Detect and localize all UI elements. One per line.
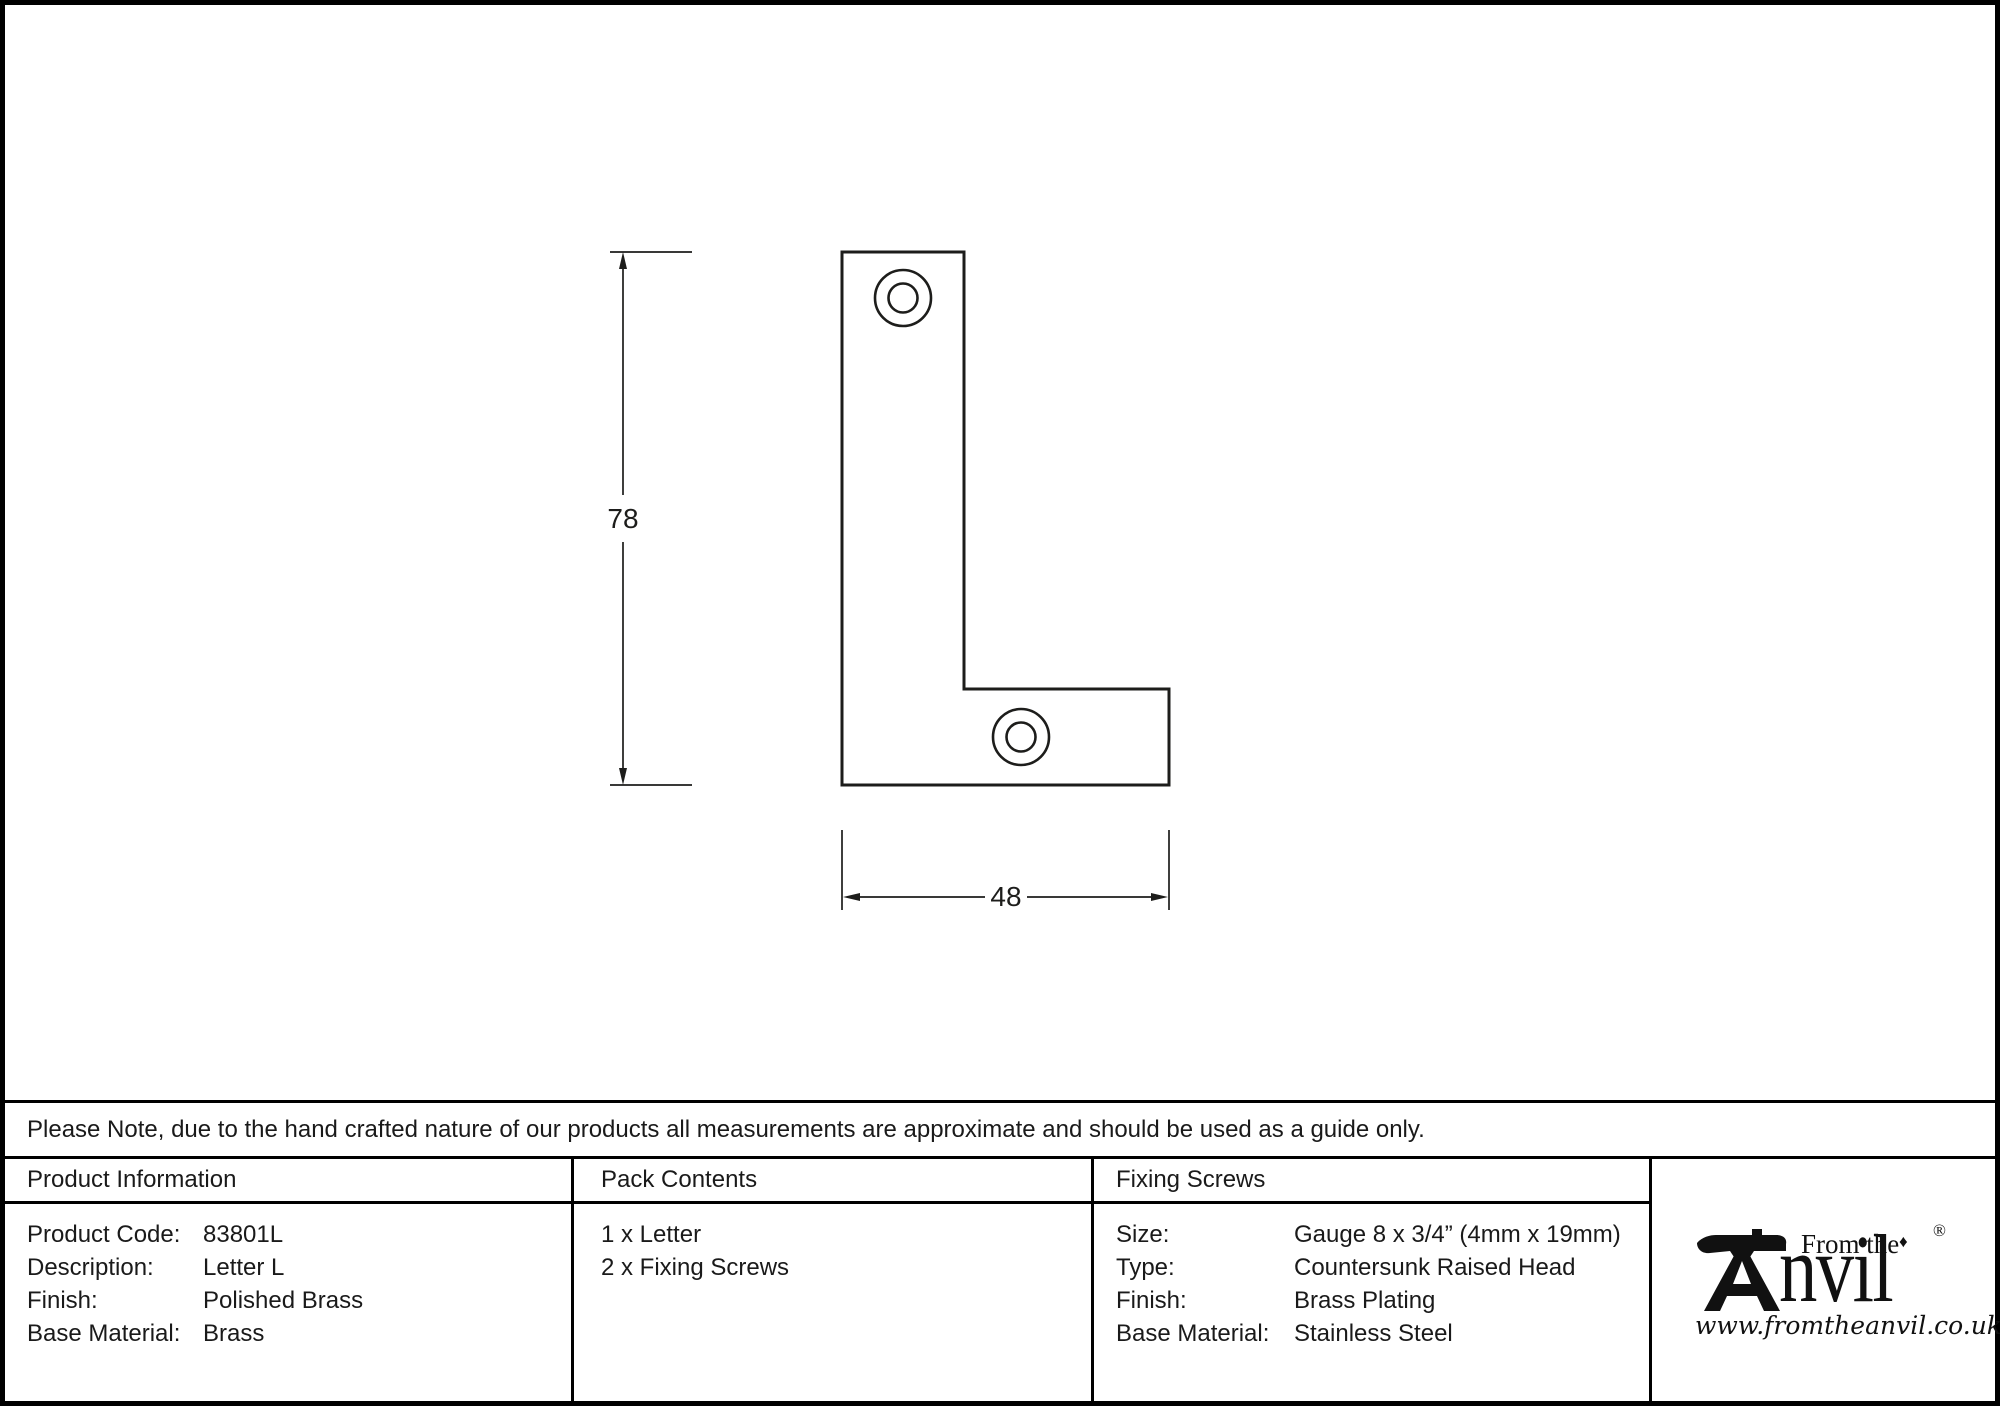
field-label: Finish: [1116, 1284, 1294, 1317]
fixing-screws-column: Fixing Screws Size: Gauge 8 x 3/4” (4mm … [1094, 1159, 1652, 1406]
brand-logo-cell: nvil From the ♦ ® www.fromtheanvil.co.uk [1652, 1159, 2000, 1406]
field-label: Product Code: [27, 1218, 203, 1251]
pack-contents-header: Pack Contents [574, 1159, 1091, 1204]
measurement-note: Please Note, due to the hand crafted nat… [0, 1100, 2000, 1159]
table-row: Finish: Brass Plating [1116, 1284, 1649, 1317]
height-dimension-label: 78 [607, 503, 638, 534]
field-value: Brass [203, 1317, 264, 1350]
info-section: Please Note, due to the hand crafted nat… [0, 1100, 2000, 1406]
field-label: Finish: [27, 1284, 203, 1317]
field-value: Stainless Steel [1294, 1317, 1453, 1350]
registered-mark-icon: ® [1933, 1221, 1946, 1241]
table-row: Product Code: 83801L [27, 1218, 571, 1251]
field-value: Countersunk Raised Head [1294, 1251, 1576, 1284]
arrow-right-icon [1151, 893, 1168, 901]
product-information-column: Product Information Product Code: 83801L… [0, 1159, 574, 1406]
field-label: Description: [27, 1251, 203, 1284]
field-label: Base Material: [1116, 1317, 1294, 1350]
technical-drawing: 78 48 [550, 190, 1270, 960]
brand-tagline: From the [1801, 1229, 1899, 1260]
arrow-up-icon [619, 252, 627, 269]
screw-hole-top-icon [875, 270, 931, 326]
product-spec-sheet: 78 48 Please Note, due to the hand craft… [0, 0, 2000, 1406]
table-row: Description: Letter L [27, 1251, 571, 1284]
field-value: 83801L [203, 1218, 283, 1251]
field-label: Type: [1116, 1251, 1294, 1284]
product-information-header: Product Information [0, 1159, 571, 1204]
pack-contents-column: Pack Contents 1 x Letter 2 x Fixing Scre… [574, 1159, 1094, 1406]
field-label: Size: [1116, 1218, 1294, 1251]
arrow-down-icon [619, 768, 627, 785]
table-row: Type: Countersunk Raised Head [1116, 1251, 1649, 1284]
info-table: Product Information Product Code: 83801L… [0, 1159, 2000, 1406]
pack-item: 1 x Letter [601, 1218, 1091, 1251]
table-row: Finish: Polished Brass [27, 1284, 571, 1317]
diamond-icon: ♦ [1899, 1232, 1908, 1252]
arrow-left-icon [843, 893, 860, 901]
brand-logo: nvil From the ♦ ® www.fromtheanvil.co.uk [1695, 1225, 1957, 1347]
fixing-screws-header: Fixing Screws [1094, 1159, 1649, 1204]
table-row: Base Material: Brass [27, 1317, 571, 1350]
brand-website: www.fromtheanvil.co.uk [1695, 1311, 1957, 1340]
width-dimension-label: 48 [990, 881, 1021, 912]
letter-l-outline [842, 252, 1169, 785]
table-row: Size: Gauge 8 x 3/4” (4mm x 19mm) [1116, 1218, 1649, 1251]
field-value: Polished Brass [203, 1284, 363, 1317]
field-value: Letter L [203, 1251, 284, 1284]
field-label: Base Material: [27, 1317, 203, 1350]
field-value: Brass Plating [1294, 1284, 1435, 1317]
note-text: Please Note, due to the hand crafted nat… [27, 1116, 1425, 1144]
table-row: Base Material: Stainless Steel [1116, 1317, 1649, 1350]
field-value: Gauge 8 x 3/4” (4mm x 19mm) [1294, 1218, 1621, 1251]
pack-item: 2 x Fixing Screws [601, 1251, 1091, 1284]
screw-hole-bottom-icon [993, 709, 1049, 765]
